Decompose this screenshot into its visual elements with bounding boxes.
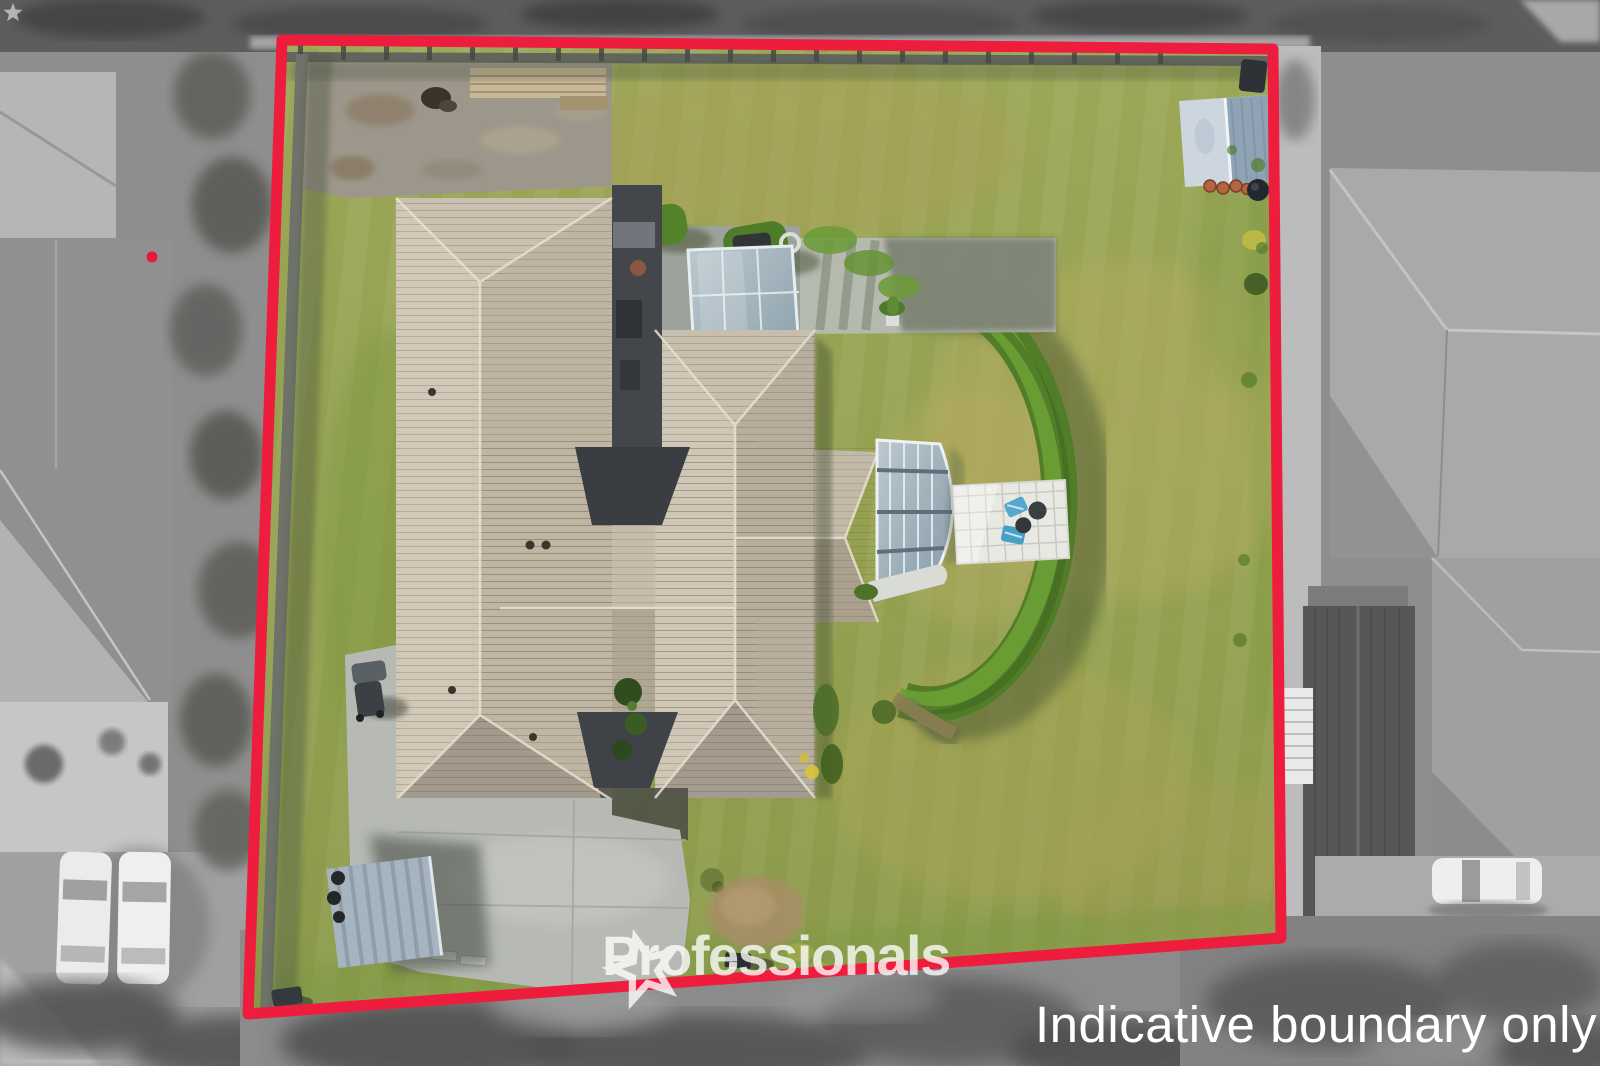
property-aerial-color bbox=[230, 30, 1350, 1030]
right-white-car bbox=[1428, 858, 1548, 919]
gravel-yard bbox=[298, 60, 612, 198]
round-tank bbox=[1247, 179, 1269, 201]
aerial-property-photo: Professionals Indicative boundary only bbox=[0, 0, 1600, 1066]
red-dot-marker bbox=[147, 252, 158, 263]
white-paved-patio bbox=[953, 480, 1069, 564]
bin bbox=[1238, 59, 1267, 94]
chimney bbox=[630, 260, 646, 276]
photo-scene bbox=[0, 0, 1600, 1066]
